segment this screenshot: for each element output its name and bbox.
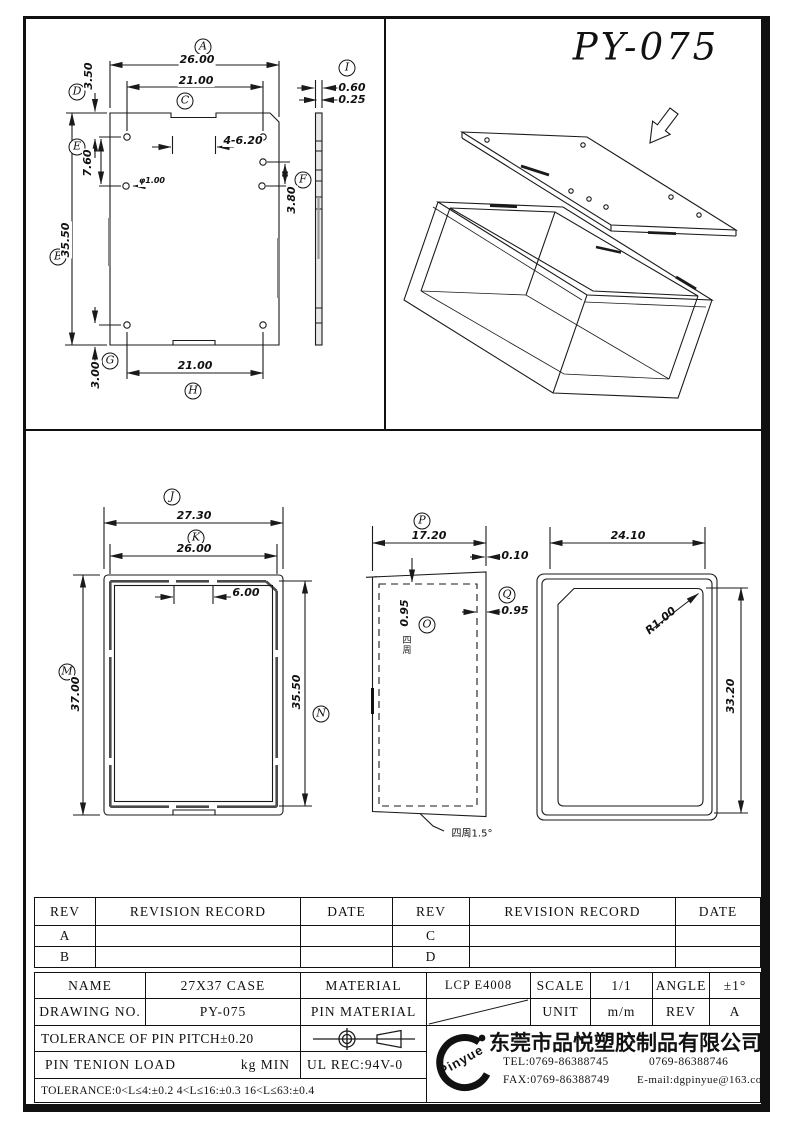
company-fax: FAX:0769-86388749 <box>503 1074 610 1086</box>
rev-d-date <box>675 946 761 968</box>
pin-material-value-empty <box>426 998 531 1026</box>
balloon-o: O <box>419 617 436 634</box>
rev-b-date <box>300 946 393 968</box>
rev-a-record <box>95 925 301 947</box>
company-tel2: 0769-86388746 <box>649 1056 728 1068</box>
rev-header-2: REV <box>392 897 470 926</box>
balloon-p: P <box>414 513 431 530</box>
material-label: MATERIAL <box>300 972 427 999</box>
rev-b-cell: B <box>34 946 96 968</box>
rev-c-record <box>469 925 676 947</box>
drawing-no-value: PY-075 <box>145 998 301 1026</box>
scale-value: 1/1 <box>590 972 653 999</box>
dim-lid-recess-width: 24.10 <box>610 530 647 542</box>
balloon-q: Q <box>499 587 516 604</box>
part-number-title: PY-075 <box>573 26 719 69</box>
scale-label: SCALE <box>530 972 591 999</box>
date-header-2: DATE <box>675 897 761 926</box>
pin-tension-label: PIN TENION LOAD <box>45 1057 176 1073</box>
company-name: 东莞市品悦塑胶制品有限公司 <box>489 1027 761 1057</box>
dim-case-inner-height: 35.50 <box>291 674 303 711</box>
angle-label: ANGLE <box>652 972 710 999</box>
revision-record-header-2: REVISION RECORD <box>469 897 676 926</box>
date-header: DATE <box>300 897 393 926</box>
note-wall-all-around: 四周 <box>402 636 413 656</box>
dim-case-depth: 17.20 <box>411 530 448 542</box>
pin-material-label: PIN MATERIAL <box>300 998 427 1026</box>
dim-plate-edge-offset: 3.50 <box>83 61 95 90</box>
dim-plate-step: 0.25 <box>337 94 366 106</box>
material-value: LCP E4008 <box>426 972 531 999</box>
title-block: NAME 27X37 CASE MATERIAL LCP E4008 SCALE… <box>34 972 761 1103</box>
rev-d-record <box>469 946 676 968</box>
balloon-i: I <box>339 60 356 77</box>
dim-plate-hole-span-top: 21.00 <box>178 75 215 87</box>
dim-plate-hole-pitch-left: 7.60 <box>82 148 94 177</box>
rev-b-record <box>95 946 301 968</box>
revision-record-header: REVISION RECORD <box>95 897 301 926</box>
dim-case-wall-right: 0.95 <box>500 605 529 617</box>
empty-cell-slash <box>427 999 530 1025</box>
note-draft-angle: 四周1.5° <box>452 825 493 840</box>
divider-vertical <box>384 19 386 431</box>
projection-symbol-cell <box>300 1025 427 1052</box>
revision-table: REV REVISION RECORD DATE REV REVISION RE… <box>34 897 761 967</box>
pin-tension-row: PIN TENION LOAD kg MIN <box>34 1051 301 1079</box>
dim-plate-height: 35.50 <box>60 222 72 259</box>
rev-header: REV <box>34 897 96 926</box>
dim-plate-hole-span-bottom: 21.00 <box>177 360 214 372</box>
dim-plate-width: 26.00 <box>179 54 216 66</box>
balloon-j: J <box>164 489 181 506</box>
name-value: 27X37 CASE <box>145 972 301 999</box>
balloon-h: H <box>185 383 202 400</box>
unit-value: m/m <box>590 998 653 1026</box>
dim-lid-recess-height: 33.20 <box>725 678 737 715</box>
rev-c-cell: C <box>392 925 470 947</box>
pin-pitch-tolerance: TOLERANCE OF PIN PITCH±0.20 <box>34 1025 301 1052</box>
balloon-c: C <box>177 93 194 110</box>
name-label: NAME <box>34 972 146 999</box>
dim-case-wall-thickness: 0.95 <box>399 598 411 627</box>
dim-plate-hole-count: 4-6.20 <box>222 135 263 147</box>
drawing-sheet: PY-075 A 26.00 C 21.00 D 3.50 I 0.60 0.2… <box>0 0 794 1122</box>
dim-plate-hole-diameter: φ1.00 <box>138 175 166 187</box>
rev-a-cell: A <box>34 925 96 947</box>
rev-value: A <box>709 998 761 1026</box>
dim-case-inner-width: 26.00 <box>176 543 213 555</box>
pin-tension-unit: kg MIN <box>241 1057 290 1073</box>
dim-plate-hole-pitch-right: 3.80 <box>286 185 298 214</box>
dim-case-slot-width: 6.00 <box>231 587 260 599</box>
dim-case-outer-height: 37.00 <box>70 676 82 713</box>
ul-rec: UL REC:94V-0 <box>300 1051 427 1079</box>
company-email: E-mail:dgpinyue@163.com <box>637 1074 761 1086</box>
rev-a-date <box>300 925 393 947</box>
drawing-no-label: DRAWING NO. <box>34 998 146 1026</box>
pinyue-logo: Pinyue <box>429 1030 497 1102</box>
divider-horizontal <box>26 429 761 431</box>
dim-plate-bottom-offset: 3.00 <box>90 360 102 389</box>
dim-case-outer-width: 27.30 <box>176 510 213 522</box>
unit-label: UNIT <box>530 998 591 1026</box>
angle-value: ±1° <box>709 972 761 999</box>
balloon-g: G <box>102 353 119 370</box>
company-cell: Pinyue 东莞市品悦塑胶制品有限公司 TEL:0769-86388745 0… <box>426 1025 761 1103</box>
dim-case-lip: 0.10 <box>500 550 529 562</box>
rev-d-cell: D <box>392 946 470 968</box>
rev-c-date <box>675 925 761 947</box>
length-tolerance: TOLERANCE:0<L≤4:±0.2 4<L≤16:±0.3 16<L≤63… <box>34 1078 427 1103</box>
company-tel: TEL:0769-86388745 <box>503 1056 609 1068</box>
balloon-n: N <box>313 706 330 723</box>
rev-label: REV <box>652 998 710 1026</box>
third-angle-projection-icon <box>309 1026 419 1051</box>
